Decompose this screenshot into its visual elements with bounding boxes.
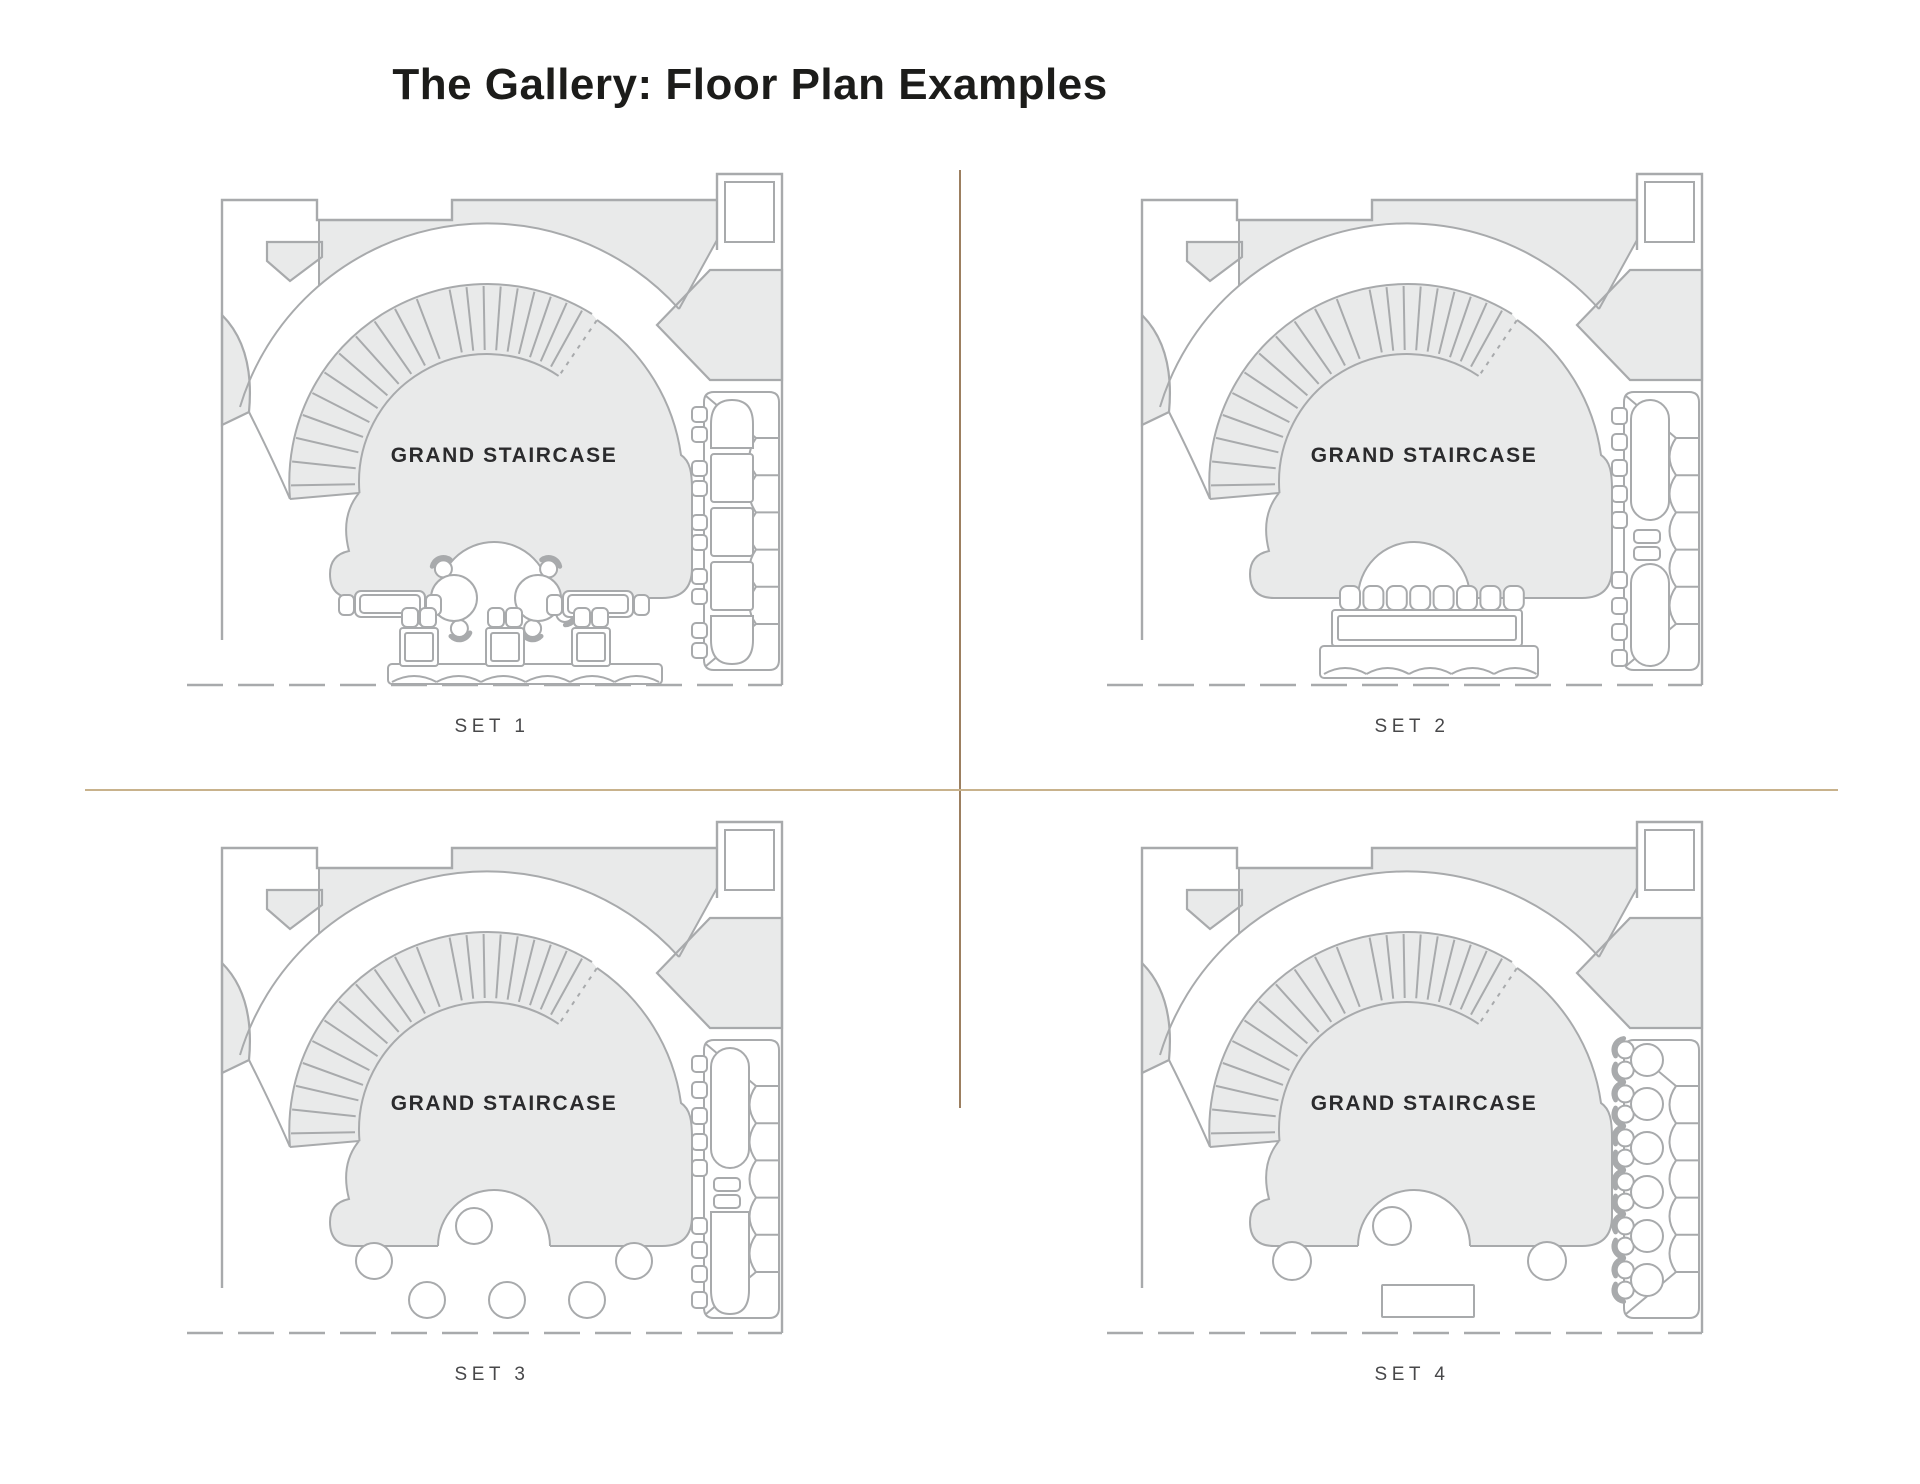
bar-table <box>1382 1285 1474 1317</box>
divider-horizontal-line <box>85 789 1838 791</box>
floor-plan-set-1: GRAND STAIRCASESET 1 <box>152 150 852 810</box>
divider-vertical-line <box>959 170 961 1108</box>
page-title: The Gallery: Floor Plan Examples <box>0 60 1500 110</box>
banquette-tables <box>1612 400 1669 666</box>
banquette-tables <box>692 400 753 664</box>
staircase-label: GRAND STAIRCASE <box>391 444 618 467</box>
floor-plan-svg-1: GRAND STAIRCASESET 1 <box>152 150 852 810</box>
staircase-label: GRAND STAIRCASE <box>1311 1092 1538 1115</box>
set-label: SET 4 <box>1375 1364 1450 1385</box>
floor-plan-svg-3: GRAND STAIRCASESET 3 <box>152 798 852 1458</box>
floor-plan-set-3: GRAND STAIRCASESET 3 <box>152 798 852 1458</box>
floor-plan-set-4: GRAND STAIRCASESET 4 <box>1072 798 1772 1458</box>
floor-plan-svg-4: GRAND STAIRCASESET 4 <box>1072 798 1772 1458</box>
conference-furniture <box>1320 586 1538 678</box>
floor-plan-set-2: GRAND STAIRCASESET 2 <box>1072 150 1772 810</box>
staircase-label: GRAND STAIRCASE <box>1311 444 1538 467</box>
set-label: SET 1 <box>455 716 530 737</box>
staircase-label: GRAND STAIRCASE <box>391 1092 618 1115</box>
banquette-tables <box>692 1048 749 1314</box>
floor-plan-svg-2: GRAND STAIRCASESET 2 <box>1072 150 1772 810</box>
set-label: SET 3 <box>455 1364 530 1385</box>
set-label: SET 2 <box>1375 716 1450 737</box>
